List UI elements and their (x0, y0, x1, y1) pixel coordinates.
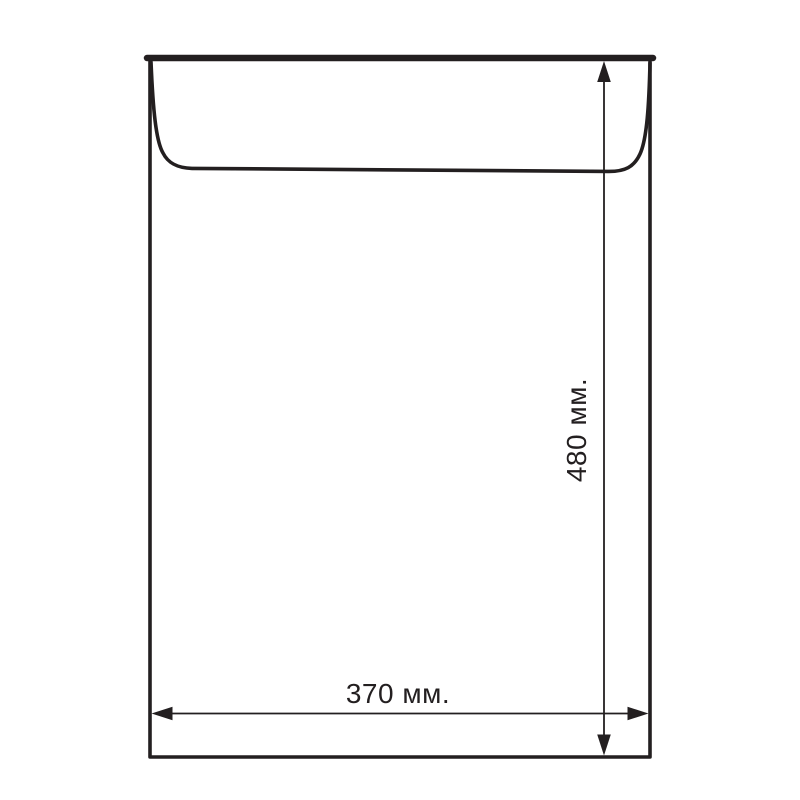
height-dimension-label: 480 мм. (561, 378, 592, 482)
diagram-canvas: 370 мм. 480 мм. (0, 0, 800, 800)
envelope-flap-seam (151, 62, 650, 171)
width-dimension-label: 370 мм. (346, 678, 450, 709)
width-arrowhead-left-icon (152, 707, 173, 721)
height-arrowhead-down-icon (597, 735, 611, 756)
envelope-dimension-diagram: 370 мм. 480 мм. (0, 0, 800, 800)
height-arrowhead-up-icon (597, 61, 611, 82)
width-arrowhead-right-icon (628, 707, 649, 721)
